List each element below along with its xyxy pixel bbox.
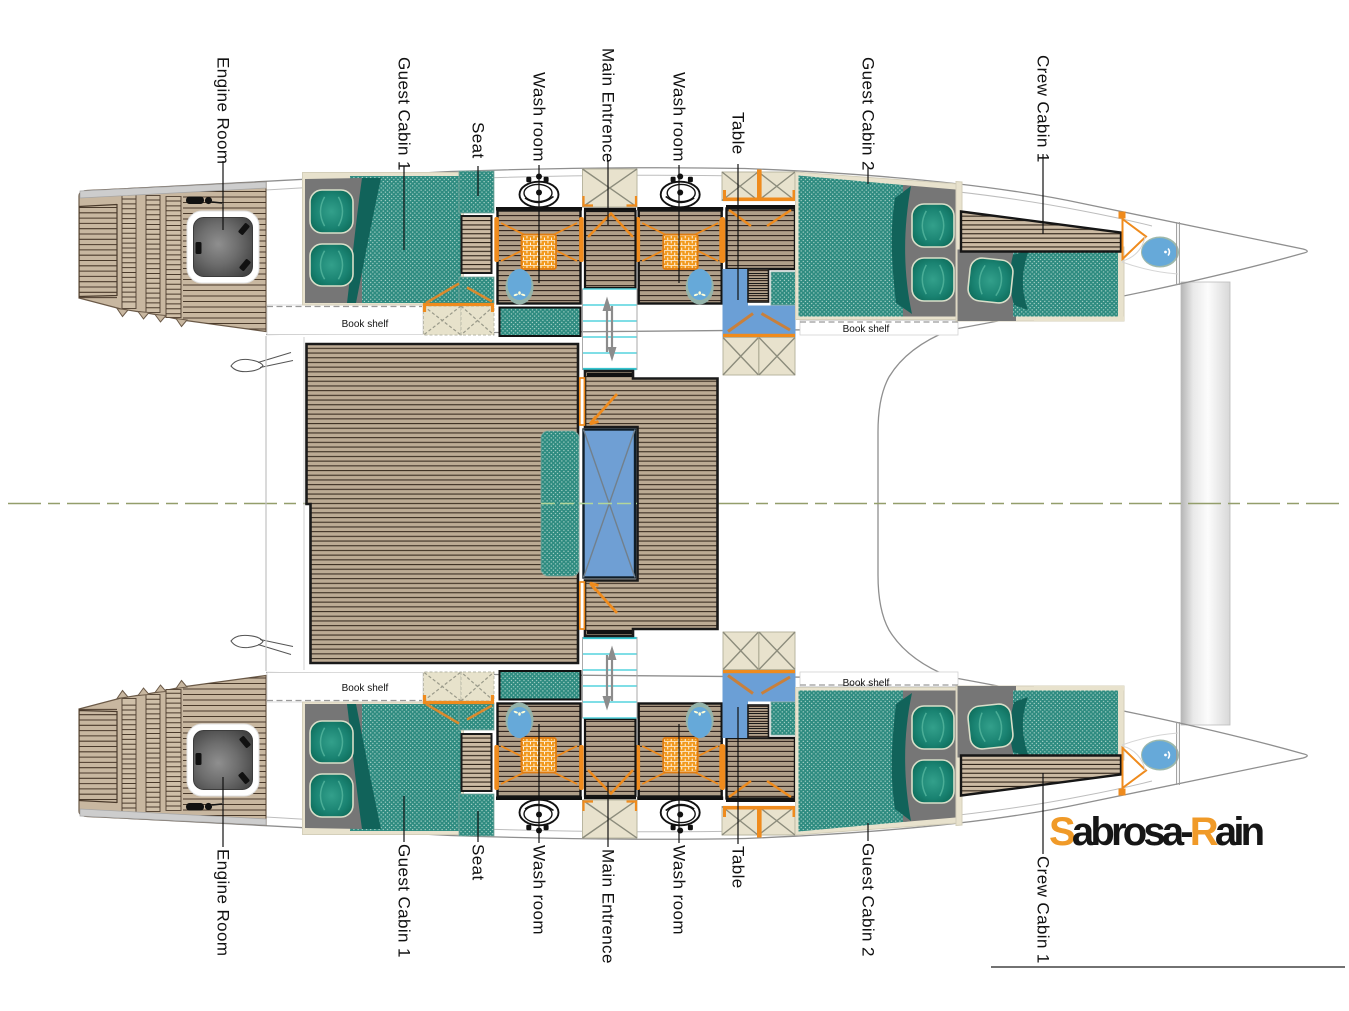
svg-text:Wash room: Wash room [670,845,689,935]
svg-text:Table: Table [729,112,748,155]
svg-text:Crew Cabin 1: Crew Cabin 1 [1034,856,1053,964]
svg-text:Guest Cabin 2: Guest Cabin 2 [859,57,878,171]
svg-text:Book shelf: Book shelf [843,324,890,335]
svg-text:Book shelf: Book shelf [342,319,389,330]
svg-text:Seat: Seat [469,122,488,159]
svg-text:Wash room: Wash room [530,845,549,935]
svg-text:Main Entrence: Main Entrence [599,849,618,964]
svg-text:Table: Table [729,846,748,889]
svg-text:Wash room: Wash room [670,72,689,162]
svg-text:Wash room: Wash room [530,72,549,162]
svg-text:Main Entrence: Main Entrence [599,48,618,163]
svg-text:Engine Room: Engine Room [214,849,233,956]
svg-text:Guest Cabin 2: Guest Cabin 2 [859,843,878,957]
svg-text:Book shelf: Book shelf [843,678,890,689]
svg-text:Sabrosa-Rain: Sabrosa-Rain [1049,810,1263,854]
svg-text:Guest Cabin 1: Guest Cabin 1 [395,844,414,958]
svg-text:Book shelf: Book shelf [342,683,389,694]
svg-text:Engine Room: Engine Room [214,57,233,164]
svg-text:Crew Cabin 1: Crew Cabin 1 [1034,55,1053,163]
svg-text:Guest Cabin 1: Guest Cabin 1 [395,57,414,171]
svg-text:Seat: Seat [469,844,488,881]
